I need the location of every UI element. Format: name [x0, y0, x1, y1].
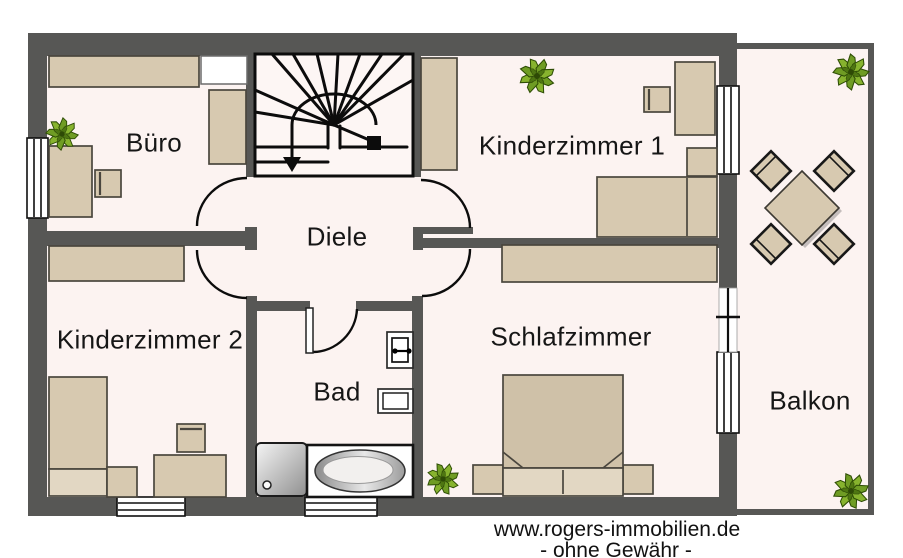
- wardrobe: [502, 245, 717, 282]
- window-icon-bad: [305, 497, 377, 516]
- wall-stub-west: [245, 227, 257, 250]
- desk: [49, 146, 92, 217]
- bed: [49, 377, 107, 469]
- watermark-disclaimer: - ohne Gewähr -: [540, 539, 692, 558]
- door-leaf-kinderzimmer1: [422, 227, 473, 234]
- nightstand: [687, 148, 717, 176]
- room-label-bad: Bad: [313, 377, 360, 408]
- nightstand: [107, 467, 137, 497]
- floorplan-page: Büro Kinderzimmer 1 Diele Kinderzimmer 2…: [0, 0, 903, 558]
- sink-icon: [378, 389, 413, 413]
- bathtub-icon: [307, 445, 413, 497]
- nightstand-left: [473, 465, 503, 494]
- balcony-door-icon: [716, 288, 740, 352]
- room-label-kinderzimmer2: Kinderzimmer 2: [57, 325, 243, 356]
- room-label-kinderzimmer1: Kinderzimmer 1: [479, 131, 665, 162]
- desk: [675, 62, 715, 135]
- desk: [154, 455, 226, 497]
- wall-niche: [201, 56, 247, 84]
- shelf: [49, 246, 184, 281]
- staircase-newel: [367, 136, 381, 150]
- room-label-diele: Diele: [307, 222, 368, 253]
- window-icon-buero: [27, 138, 48, 218]
- wall-outer-left: [28, 33, 47, 516]
- cabinet: [209, 90, 246, 164]
- window-icon-kinderzimmer2: [117, 497, 185, 516]
- nightstand-right: [623, 465, 653, 494]
- window-icon-kinderzimmer1: [717, 86, 739, 174]
- shower-icon: [256, 443, 307, 496]
- window-icon-schlafzimmer: [717, 352, 739, 433]
- balcony-floor: [737, 49, 868, 509]
- bed-pillow: [49, 469, 107, 496]
- wall-balcony-right: [868, 43, 874, 515]
- wardrobe: [421, 58, 457, 170]
- room-label-buero: Büro: [126, 128, 182, 159]
- room-label-schlafzimmer: Schlafzimmer: [490, 322, 651, 353]
- wall-bad-north-left: [246, 301, 310, 311]
- shelf: [49, 56, 199, 87]
- bed: [597, 177, 717, 237]
- staircase: [255, 54, 413, 176]
- toilet-icon: [387, 332, 413, 368]
- double-bed: [503, 375, 623, 468]
- room-label-balkon: Balkon: [769, 386, 850, 417]
- wall-balcony-bottom: [737, 509, 874, 515]
- floorplan-canvas: [0, 0, 903, 558]
- wall-balcony-top: [737, 43, 874, 49]
- wall-buero-kinderzimmer2: [47, 231, 257, 246]
- wall-stub-east: [413, 227, 423, 250]
- door-leaf-bad: [306, 308, 313, 353]
- wall-bad-north-right: [356, 301, 423, 311]
